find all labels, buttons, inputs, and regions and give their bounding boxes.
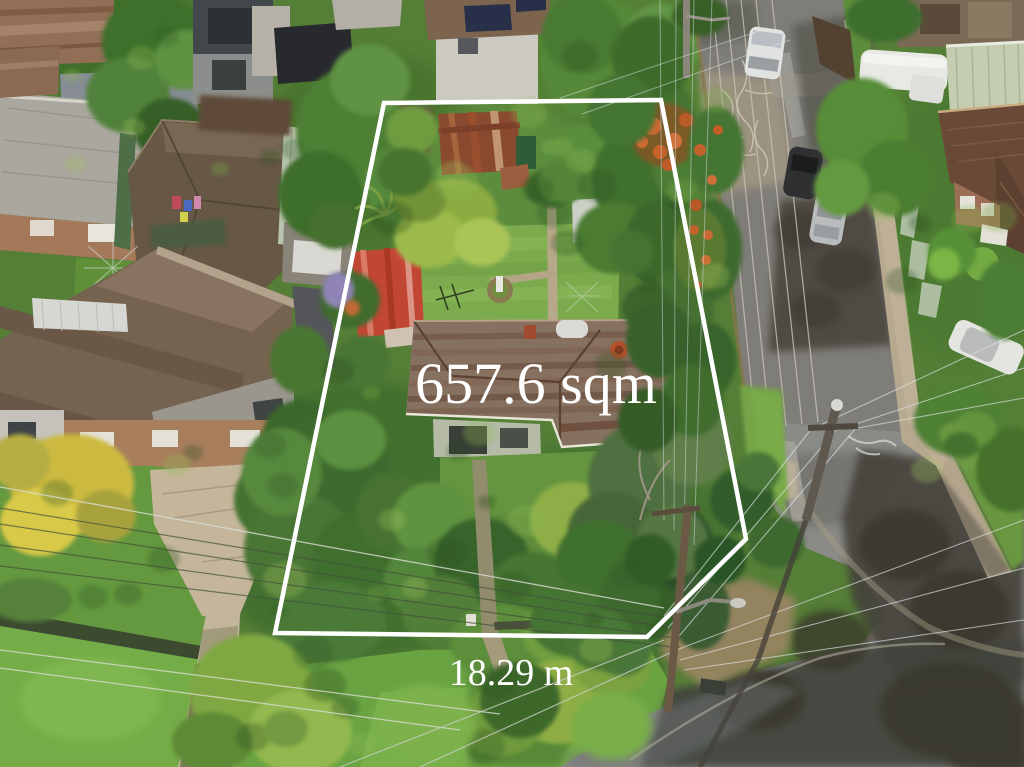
svg-text:657.6 sqm: 657.6 sqm [415,351,657,416]
svg-text:18.29 m: 18.29 m [449,652,574,694]
